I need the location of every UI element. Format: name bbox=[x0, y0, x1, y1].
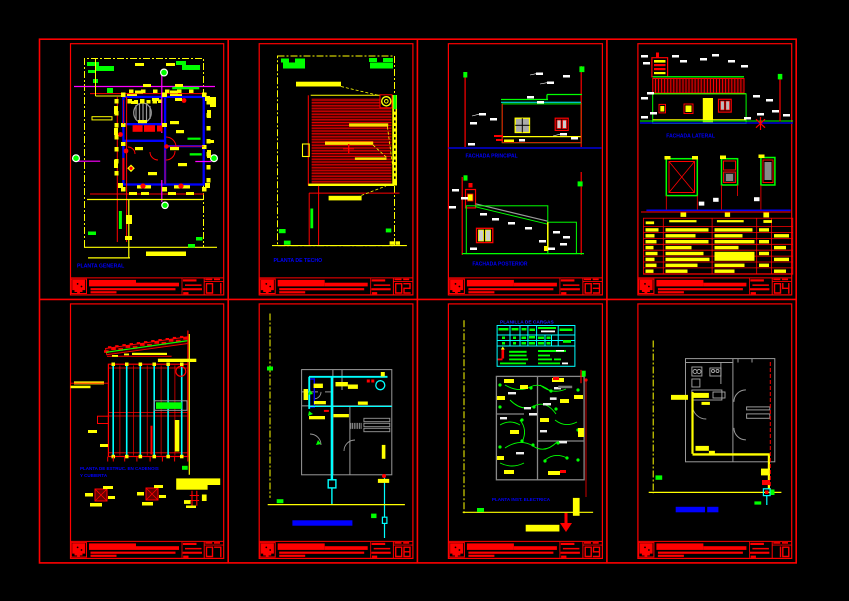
svg-text:PLANILLA DE CARGAS: PLANILLA DE CARGAS bbox=[500, 320, 554, 326]
svg-text:FACHADA LATERAL: FACHADA LATERAL bbox=[666, 134, 715, 140]
svg-text:Y CUBIERTA: Y CUBIERTA bbox=[80, 473, 108, 478]
svg-text:FACHADA POSTERIOR: FACHADA POSTERIOR bbox=[472, 262, 527, 268]
svg-text:FACHADA PRINCIPAL: FACHADA PRINCIPAL bbox=[466, 154, 518, 160]
svg-text:PLANTA GENERAL: PLANTA GENERAL bbox=[77, 264, 125, 270]
svg-text:PLANTA DE ESTRUC. EN CADENOIS: PLANTA DE ESTRUC. EN CADENOIS bbox=[80, 466, 159, 471]
svg-text:PLANTA INST. ELECTRICA: PLANTA INST. ELECTRICA bbox=[492, 497, 551, 502]
svg-text:PLANTA DE TECHO: PLANTA DE TECHO bbox=[274, 258, 323, 264]
